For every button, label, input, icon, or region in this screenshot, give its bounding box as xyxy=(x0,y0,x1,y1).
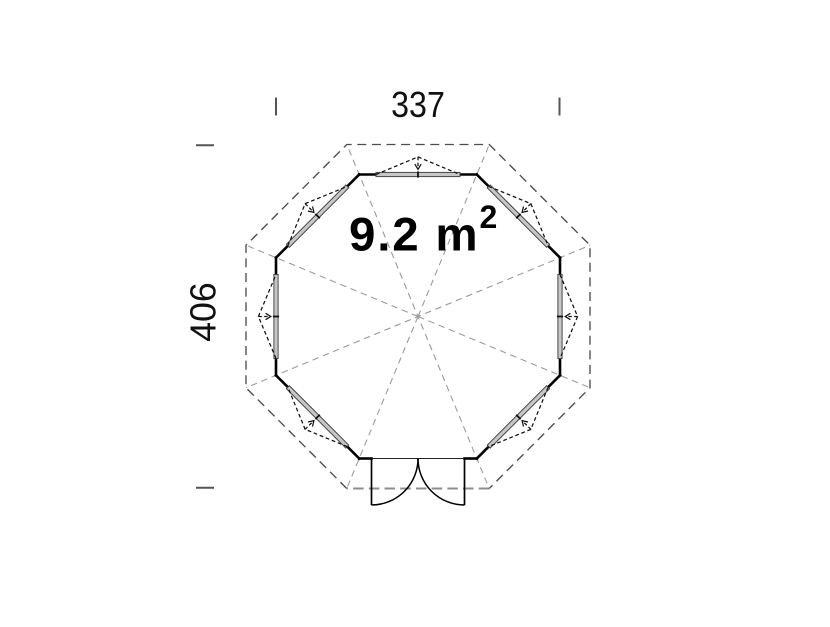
svg-text:337: 337 xyxy=(391,85,445,125)
svg-text:406: 406 xyxy=(184,282,224,342)
svg-text:9.2 m2: 9.2 m2 xyxy=(349,199,497,262)
